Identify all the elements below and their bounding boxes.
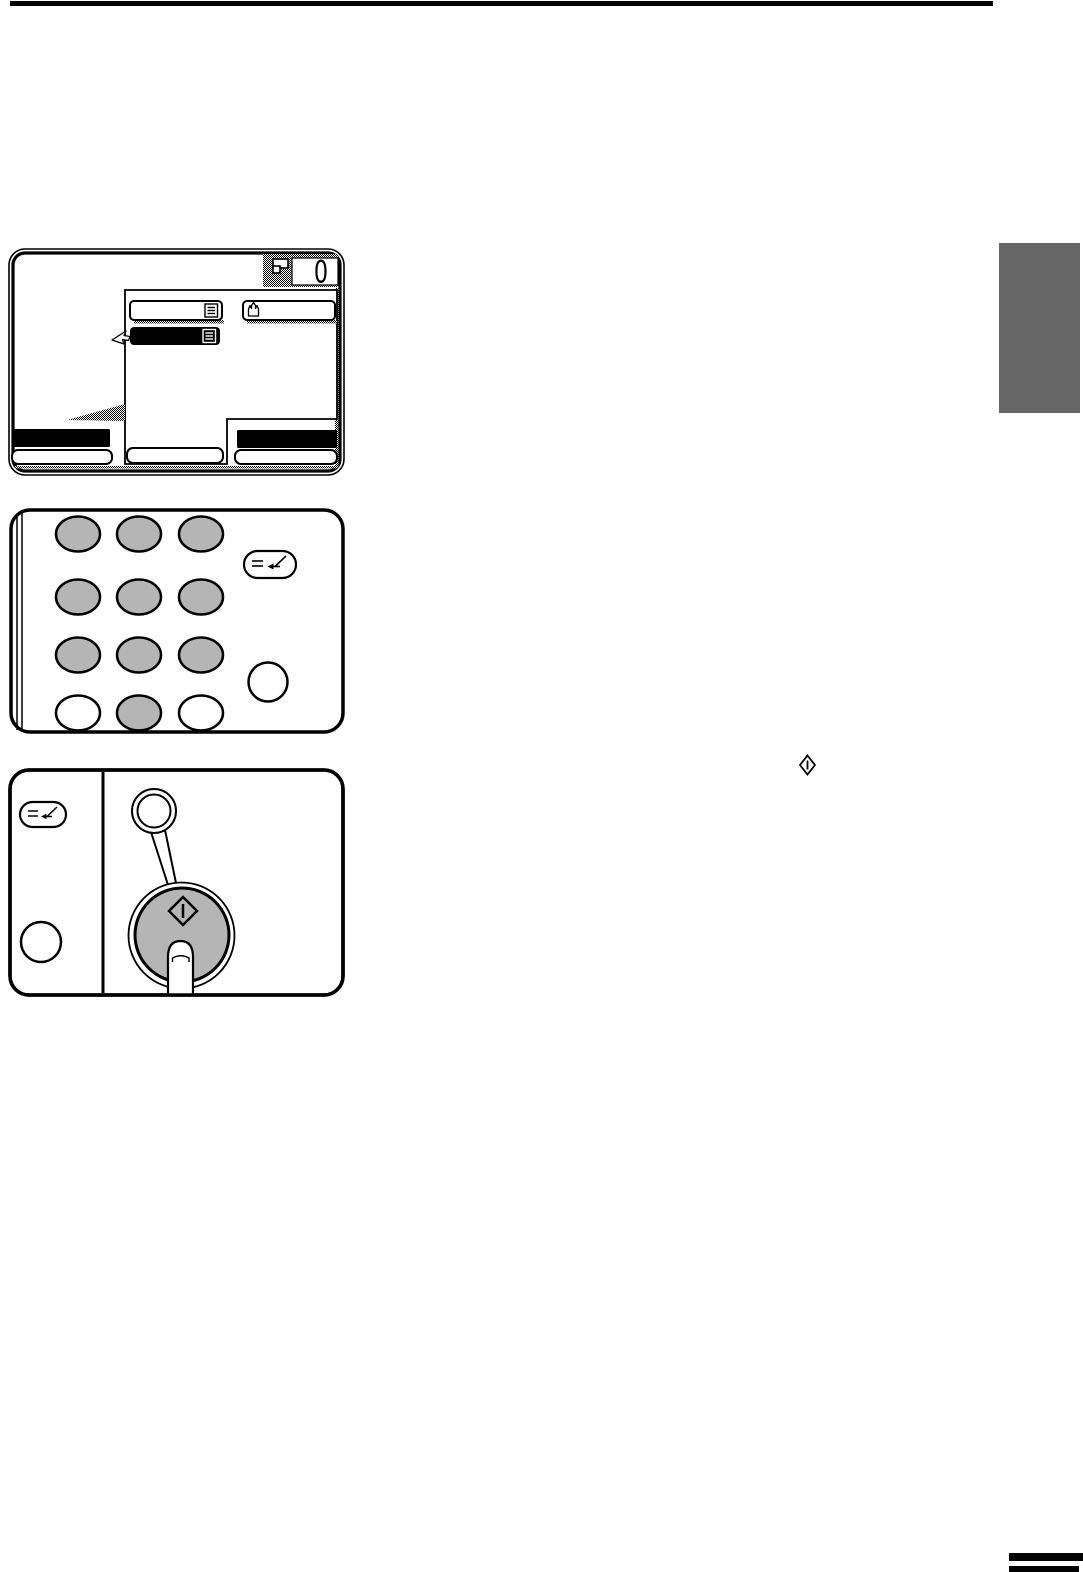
- chapter-tab: [999, 243, 1080, 413]
- start-diamond-icon: [799, 754, 816, 776]
- keypad-key: [117, 696, 161, 731]
- bottom-bar-black-right: [237, 430, 337, 448]
- keypad-key: [117, 580, 161, 615]
- bottom-button-outline-right: [235, 450, 337, 464]
- list-icon-inverse: [203, 330, 216, 343]
- copy-counter-area: 0: [263, 254, 338, 291]
- keypad-key: [56, 580, 100, 615]
- clear-key: [249, 663, 288, 702]
- popup-bottom-button: [127, 448, 223, 463]
- keypad-key: [179, 517, 223, 552]
- numeric-keypad-illustration: [5, 504, 345, 737]
- program-key: [244, 551, 296, 578]
- menu-item-selected: [130, 327, 220, 345]
- start-key-illustration: [5, 766, 345, 999]
- keypad-key: [117, 517, 161, 552]
- finger: [168, 941, 193, 994]
- keypad-key: [179, 638, 223, 673]
- keypad-key: [56, 517, 100, 552]
- footer-marker-bar: [1009, 1566, 1079, 1572]
- program-key: [20, 802, 66, 827]
- copy-count-value: 0: [314, 255, 328, 291]
- top-rule: [10, 1, 993, 6]
- keypad-key: [56, 638, 100, 673]
- keypad-key: [179, 580, 223, 615]
- menu-item-top-left: [130, 301, 222, 320]
- keypad-key: [117, 638, 161, 673]
- footer-marker-bar: [1009, 1553, 1083, 1561]
- bottom-button-outline-left: [12, 450, 112, 464]
- bottom-bar-black-left: [12, 429, 110, 447]
- menu-item-top-right: [243, 301, 335, 320]
- keypad-key: [56, 696, 100, 731]
- touchscreen-display-illustration: 0: [8, 248, 345, 479]
- keypad-key: [179, 696, 223, 731]
- start-indicator-lamp: [132, 789, 176, 833]
- screen-edge-dither-bottom: [15, 466, 337, 469]
- interrupt-key: [21, 922, 61, 962]
- list-icon: [205, 304, 218, 317]
